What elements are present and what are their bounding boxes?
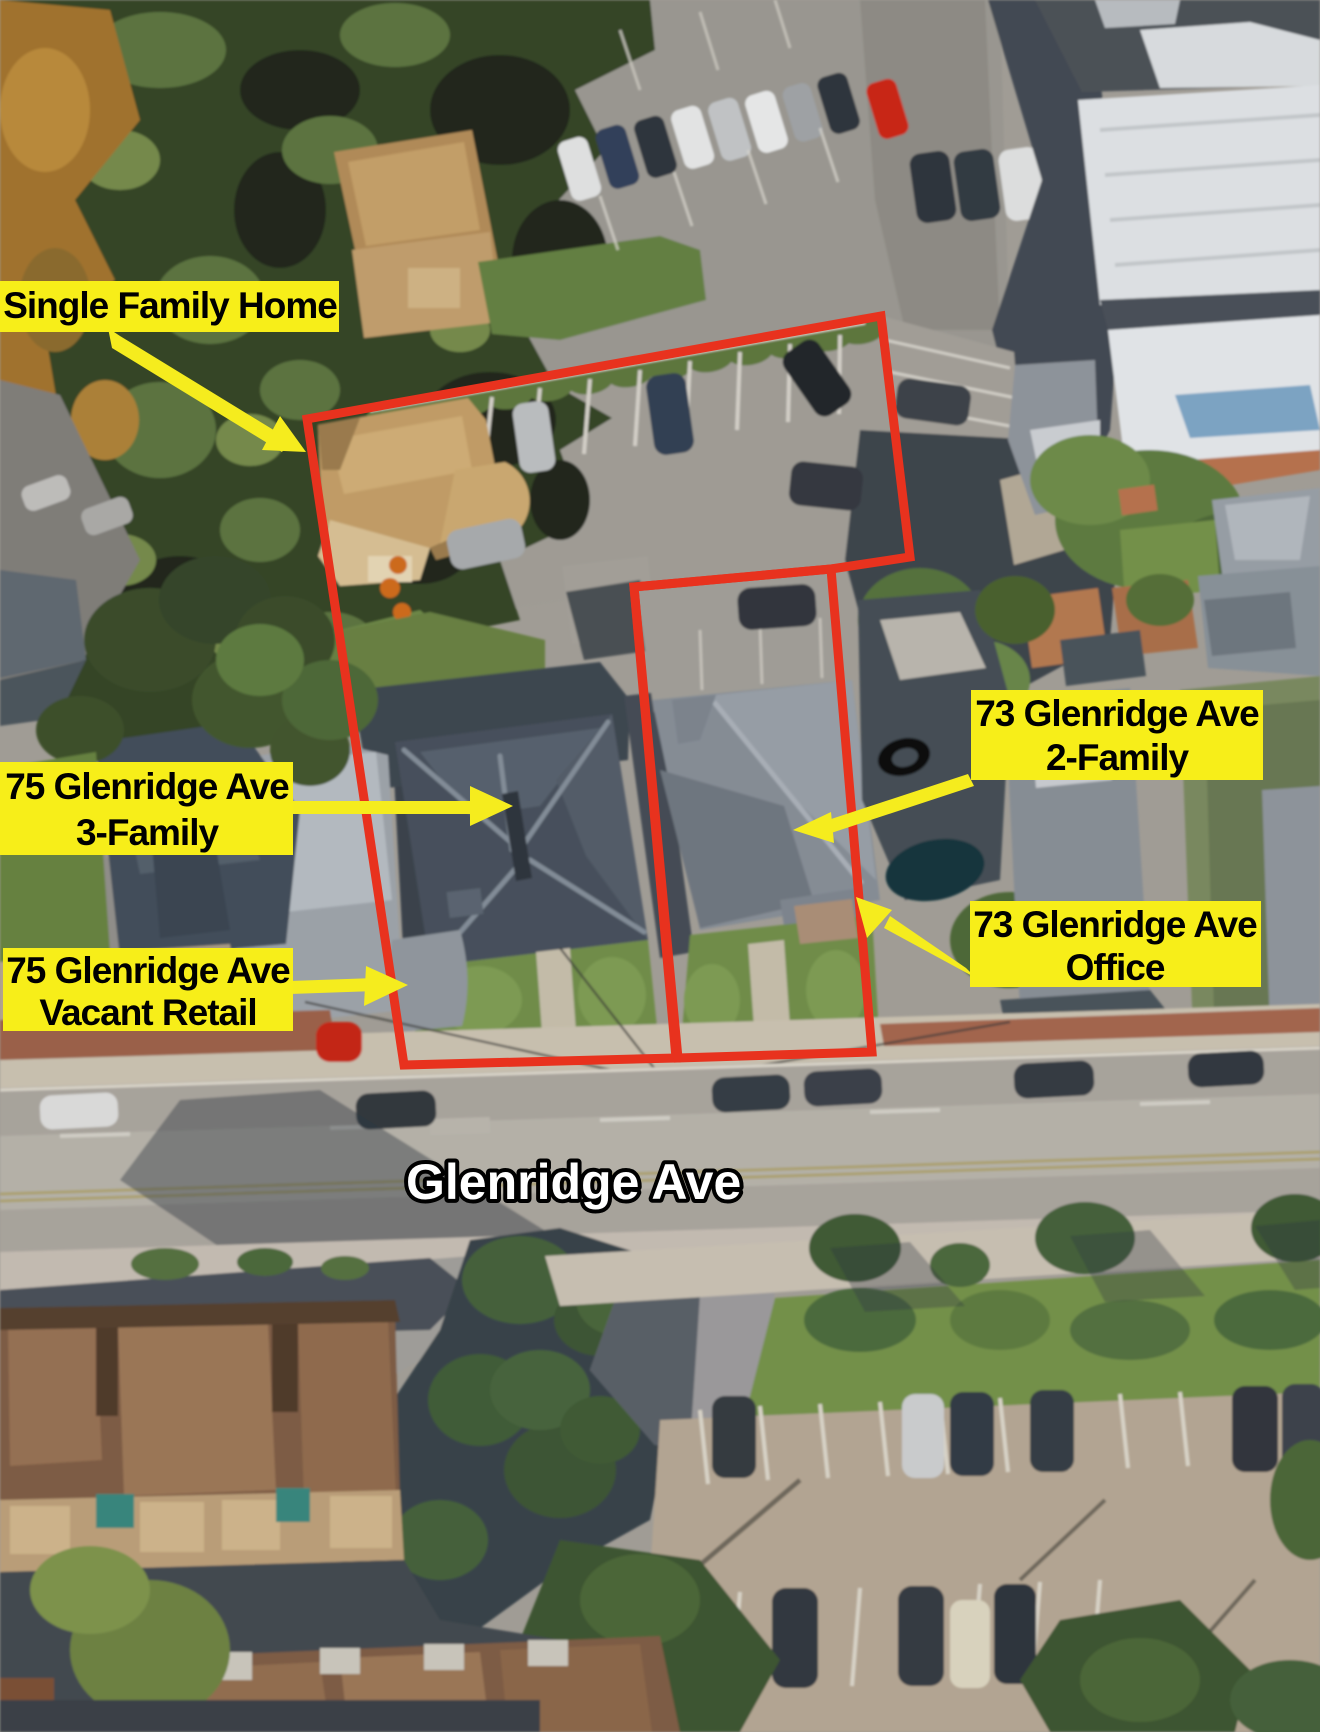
svg-text:73 Glenridge Ave: 73 Glenridge Ave [975, 693, 1259, 734]
svg-text:Single Family Home: Single Family Home [3, 285, 337, 326]
svg-text:75 Glenridge Ave: 75 Glenridge Ave [6, 950, 290, 991]
svg-text:73 Glenridge Ave: 73 Glenridge Ave [973, 904, 1257, 945]
svg-text:Office: Office [1066, 947, 1165, 988]
svg-text:2-Family: 2-Family [1046, 737, 1190, 778]
svg-text:3-Family: 3-Family [76, 812, 220, 853]
svg-text:75 Glenridge Ave: 75 Glenridge Ave [5, 766, 289, 807]
svg-text:Vacant Retail: Vacant Retail [39, 992, 256, 1033]
svg-text:Glenridge Ave: Glenridge Ave [406, 1154, 741, 1210]
